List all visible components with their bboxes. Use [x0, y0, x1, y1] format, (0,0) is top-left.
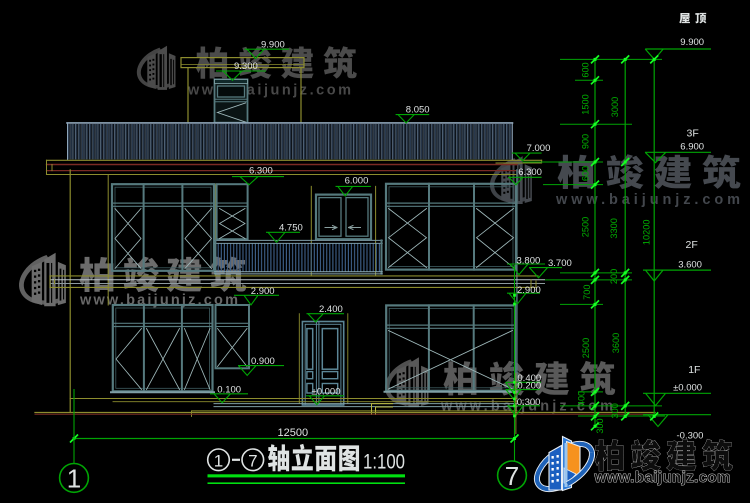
- svg-text:0.900: 0.900: [251, 356, 275, 367]
- svg-text:7: 7: [248, 451, 257, 470]
- svg-text:2500: 2500: [581, 338, 591, 358]
- svg-text:600: 600: [581, 62, 591, 77]
- svg-text:3300: 3300: [609, 218, 619, 238]
- svg-text:1: 1: [67, 463, 81, 493]
- svg-text:0.100: 0.100: [217, 385, 241, 396]
- svg-text:±0.000: ±0.000: [312, 387, 341, 398]
- svg-text:3.700: 3.700: [548, 258, 572, 269]
- svg-text:900: 900: [581, 134, 591, 149]
- svg-text:6.900: 6.900: [680, 142, 704, 153]
- svg-text:9.300: 9.300: [234, 61, 258, 72]
- svg-text:700: 700: [582, 285, 592, 300]
- svg-text:12500: 12500: [278, 427, 309, 439]
- svg-text:3.800: 3.800: [517, 255, 541, 266]
- svg-text:300: 300: [595, 418, 605, 433]
- svg-text:1:100: 1:100: [363, 451, 405, 474]
- svg-text:6.300: 6.300: [249, 166, 273, 177]
- svg-text:2.900: 2.900: [517, 285, 541, 296]
- svg-text:10200: 10200: [641, 220, 651, 246]
- svg-text:600: 600: [581, 166, 591, 181]
- svg-text:6.300: 6.300: [518, 167, 542, 178]
- svg-text:www.baijunjz.com: www.baijunjz.com: [594, 469, 731, 486]
- svg-text:200: 200: [609, 269, 619, 284]
- svg-text:3000: 3000: [610, 97, 620, 117]
- svg-text:1F: 1F: [688, 364, 700, 376]
- svg-text:8.050: 8.050: [406, 105, 430, 116]
- svg-text:3F: 3F: [687, 128, 699, 140]
- svg-text:400: 400: [577, 391, 587, 406]
- svg-text:1500: 1500: [581, 94, 591, 114]
- svg-text:7.000: 7.000: [527, 143, 551, 154]
- svg-text:1: 1: [214, 451, 223, 470]
- svg-text:2500: 2500: [581, 217, 591, 237]
- svg-text:4.750: 4.750: [279, 222, 303, 233]
- svg-text:6.000: 6.000: [345, 176, 369, 187]
- svg-text:±0.000: ±0.000: [673, 383, 702, 394]
- svg-text:9.900: 9.900: [680, 37, 704, 48]
- svg-text:2F: 2F: [686, 239, 698, 251]
- svg-text:-0.300: -0.300: [677, 430, 704, 441]
- svg-text:9.900: 9.900: [261, 39, 285, 50]
- svg-text:2.900: 2.900: [251, 286, 275, 297]
- svg-text:300: 300: [610, 403, 620, 418]
- svg-text:7: 7: [505, 461, 519, 491]
- svg-text:0.200: 0.200: [517, 381, 541, 392]
- svg-text:3.600: 3.600: [678, 259, 702, 270]
- svg-text:2.400: 2.400: [319, 304, 343, 315]
- svg-text:3600: 3600: [611, 333, 621, 353]
- svg-text:0.300: 0.300: [517, 397, 541, 408]
